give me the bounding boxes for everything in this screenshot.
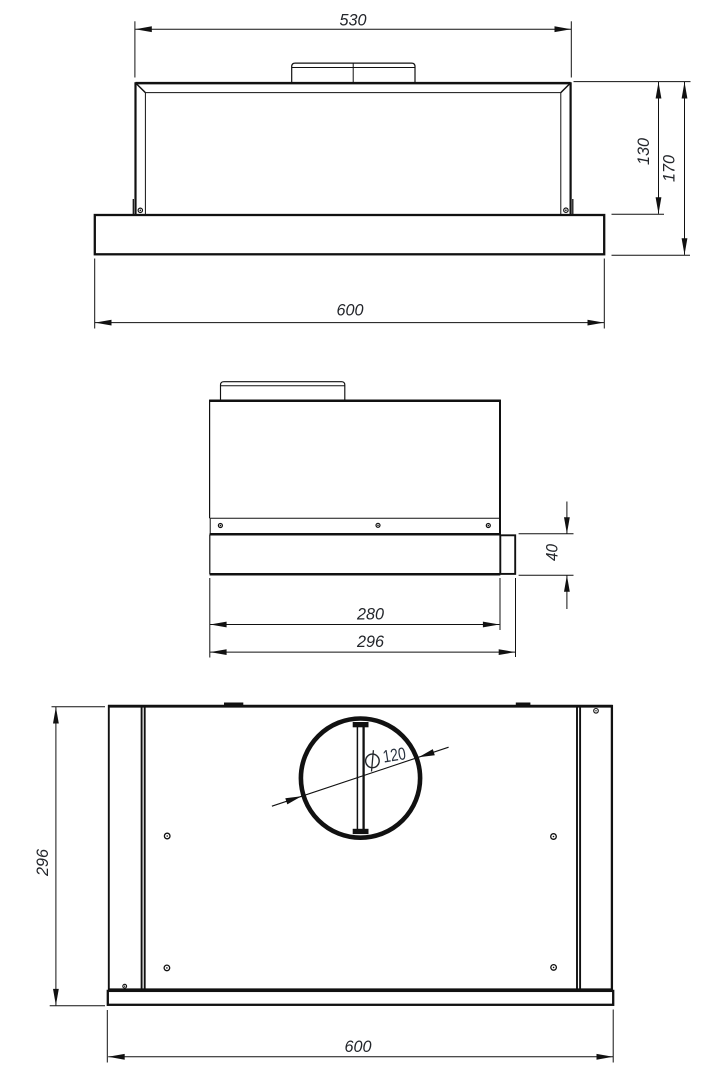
svg-text:600: 600 <box>345 1037 373 1056</box>
svg-text:280: 280 <box>356 605 384 624</box>
svg-text:530: 530 <box>340 11 368 30</box>
svg-text:120: 120 <box>381 743 407 766</box>
svg-text:40: 40 <box>542 544 561 561</box>
svg-text:296: 296 <box>356 632 384 651</box>
svg-text:600: 600 <box>337 301 365 320</box>
svg-text:170: 170 <box>660 154 679 182</box>
svg-text:296: 296 <box>33 848 52 876</box>
svg-text:130: 130 <box>634 137 653 165</box>
